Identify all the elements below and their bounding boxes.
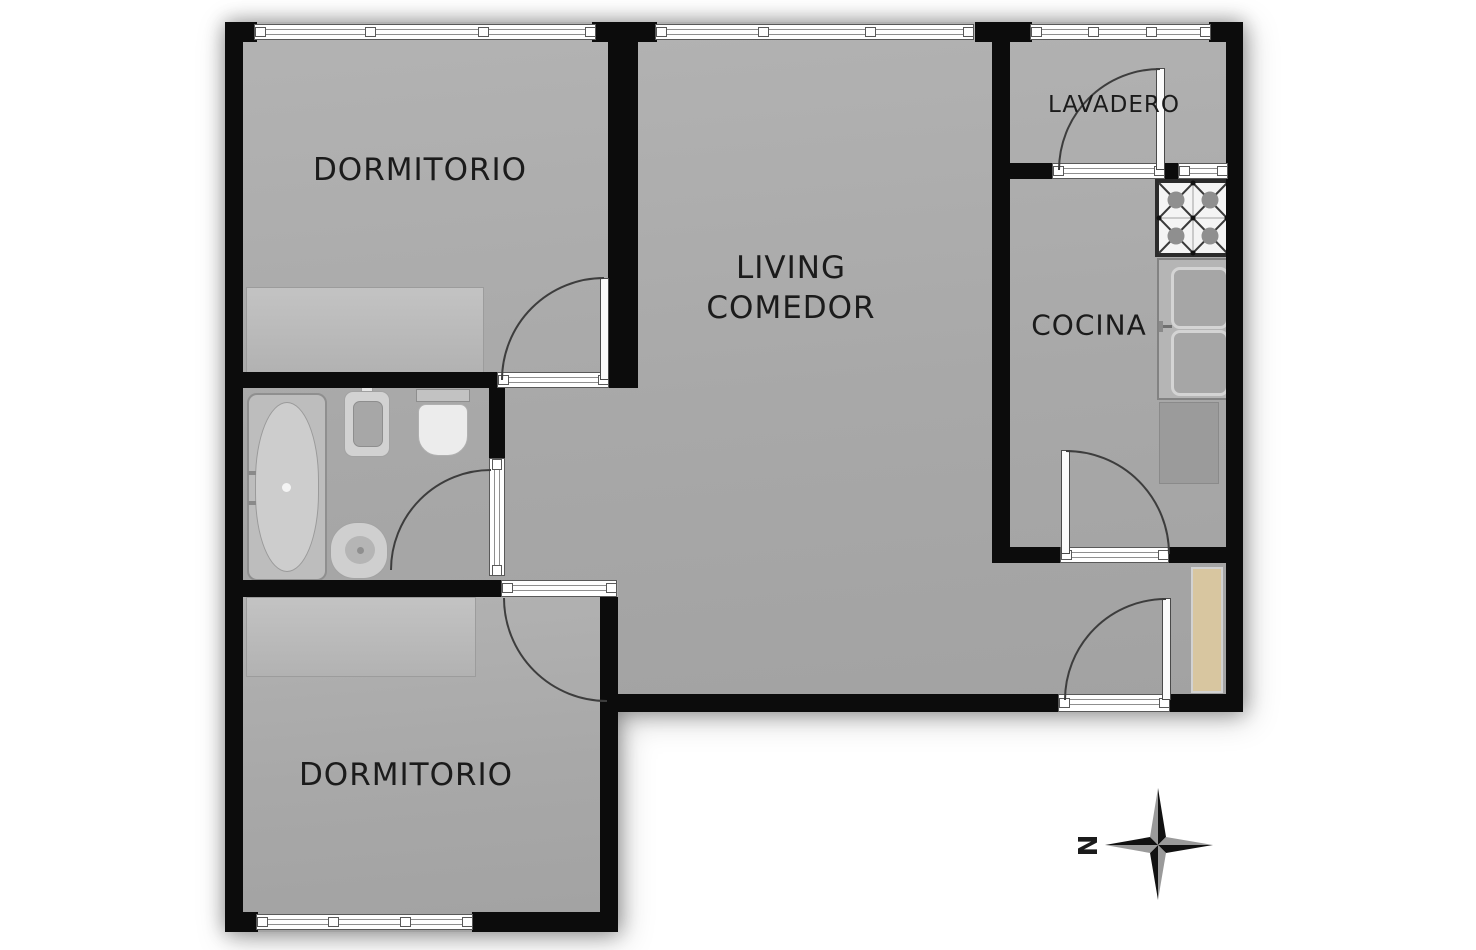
window-mullion — [257, 917, 268, 927]
wall-bedroom2-right — [600, 597, 618, 932]
door-jamb — [1053, 166, 1064, 176]
door-jamb — [606, 583, 617, 593]
label-bedroom1: DORMITORIO — [313, 152, 527, 188]
wardrobe-bedroom1 — [246, 287, 484, 373]
window-mullion — [1179, 166, 1190, 176]
door-leaf-lavadero — [1156, 68, 1165, 170]
wall-kitchen-bottom-right — [1168, 547, 1243, 563]
toilet-tank — [416, 389, 470, 402]
window-bedroom1 — [254, 24, 596, 40]
window-mullion — [1217, 166, 1228, 176]
wall-bedroom2-corner-left — [225, 912, 258, 932]
door-jamb — [492, 459, 502, 470]
bidet — [344, 391, 390, 457]
bathtub-drain — [282, 483, 291, 492]
washbasin — [330, 522, 388, 579]
wall-left — [225, 22, 243, 932]
wall-living-bottom — [618, 694, 1058, 712]
stove-icon — [1155, 179, 1231, 257]
door-leaf-entry — [1162, 598, 1171, 700]
door-opening-kitchen — [1060, 547, 1169, 563]
door-leaf-kitchen — [1061, 450, 1070, 554]
kitchen-sink-counter — [1157, 258, 1231, 400]
wall-lavadero-divider-mid — [1165, 163, 1178, 179]
compass-north-label: N — [1074, 834, 1104, 857]
door-jamb — [502, 583, 513, 593]
window-mullion — [865, 27, 876, 37]
wardrobe-bedroom2 — [246, 597, 476, 677]
wall-bedroom1-bottom — [243, 372, 497, 388]
door-leaf-bedroom1 — [600, 278, 609, 380]
window-mullion — [365, 27, 376, 37]
window-mullion — [462, 917, 473, 927]
door-jamb — [1158, 550, 1169, 560]
window-mullion — [328, 917, 339, 927]
floor-plan-canvas: DORMITORIO LIVING COMEDOR LAVADERO COCIN… — [0, 0, 1476, 950]
window-lavadero — [1030, 24, 1211, 40]
door-opening-bedroom2 — [501, 580, 617, 597]
window-mullion — [1146, 27, 1157, 37]
door-opening-bathroom — [489, 458, 505, 576]
window-mullion — [758, 27, 769, 37]
door-opening-entry — [1058, 694, 1170, 712]
wall-right — [1226, 22, 1243, 712]
wall-top-pillar-mid — [592, 22, 657, 42]
label-living: LIVING COMEDOR — [706, 248, 875, 328]
window-mullion — [963, 27, 974, 37]
entry-wood-cabinet — [1191, 567, 1223, 693]
building-shadow — [0, 0, 1476, 950]
wall-lavadero-divider-left — [1010, 163, 1052, 179]
door-opening-lavadero — [1052, 163, 1165, 179]
sink-basin-top — [1171, 267, 1229, 329]
label-lavadero: LAVADERO — [1048, 92, 1180, 118]
window-kitchen-hatch — [1178, 163, 1228, 179]
window-mullion — [1200, 27, 1211, 37]
wall-bath-bottom — [243, 580, 501, 597]
bathtub — [247, 393, 327, 581]
wall-living-bottom-right — [1170, 694, 1243, 712]
window-mullion — [400, 917, 411, 927]
bidet-bowl — [353, 401, 383, 447]
label-bedroom2: DORMITORIO — [299, 757, 513, 793]
window-mullion — [1088, 27, 1099, 37]
door-jamb — [1059, 698, 1070, 708]
wall-kitchen-left — [992, 40, 1010, 563]
wall-top-pillar-right — [975, 22, 1032, 42]
window-mullion — [1031, 27, 1042, 37]
door-opening-bedroom1 — [497, 372, 609, 388]
sink-basin-bottom — [1171, 330, 1229, 396]
window-mullion — [656, 27, 667, 37]
door-jamb — [492, 565, 502, 576]
window-mullion — [585, 27, 596, 37]
window-bedroom2 — [256, 914, 473, 930]
window-mullion — [255, 27, 266, 37]
door-jamb — [498, 375, 509, 385]
wall-top-corner-left — [225, 22, 257, 42]
label-kitchen: COCINA — [1031, 309, 1147, 342]
wall-bath-right-upper — [489, 388, 505, 460]
label-living-line2: COMEDOR — [706, 288, 875, 328]
toilet-bowl — [418, 404, 468, 456]
window-mullion — [478, 27, 489, 37]
window-living — [655, 24, 974, 40]
wall-bedroom1-right — [608, 40, 638, 388]
label-living-line1: LIVING — [706, 248, 875, 288]
bathtub-faucet2 — [248, 501, 256, 505]
sink-faucet-knob — [1159, 321, 1163, 332]
washbasin-drain — [357, 547, 364, 554]
bathtub-faucet — [248, 471, 256, 475]
wall-bedroom2-bottom-right — [472, 912, 618, 932]
stove — [1155, 179, 1231, 257]
wall-kitchen-bottom-left — [992, 547, 1062, 563]
kitchen-lower-counter — [1159, 402, 1219, 484]
